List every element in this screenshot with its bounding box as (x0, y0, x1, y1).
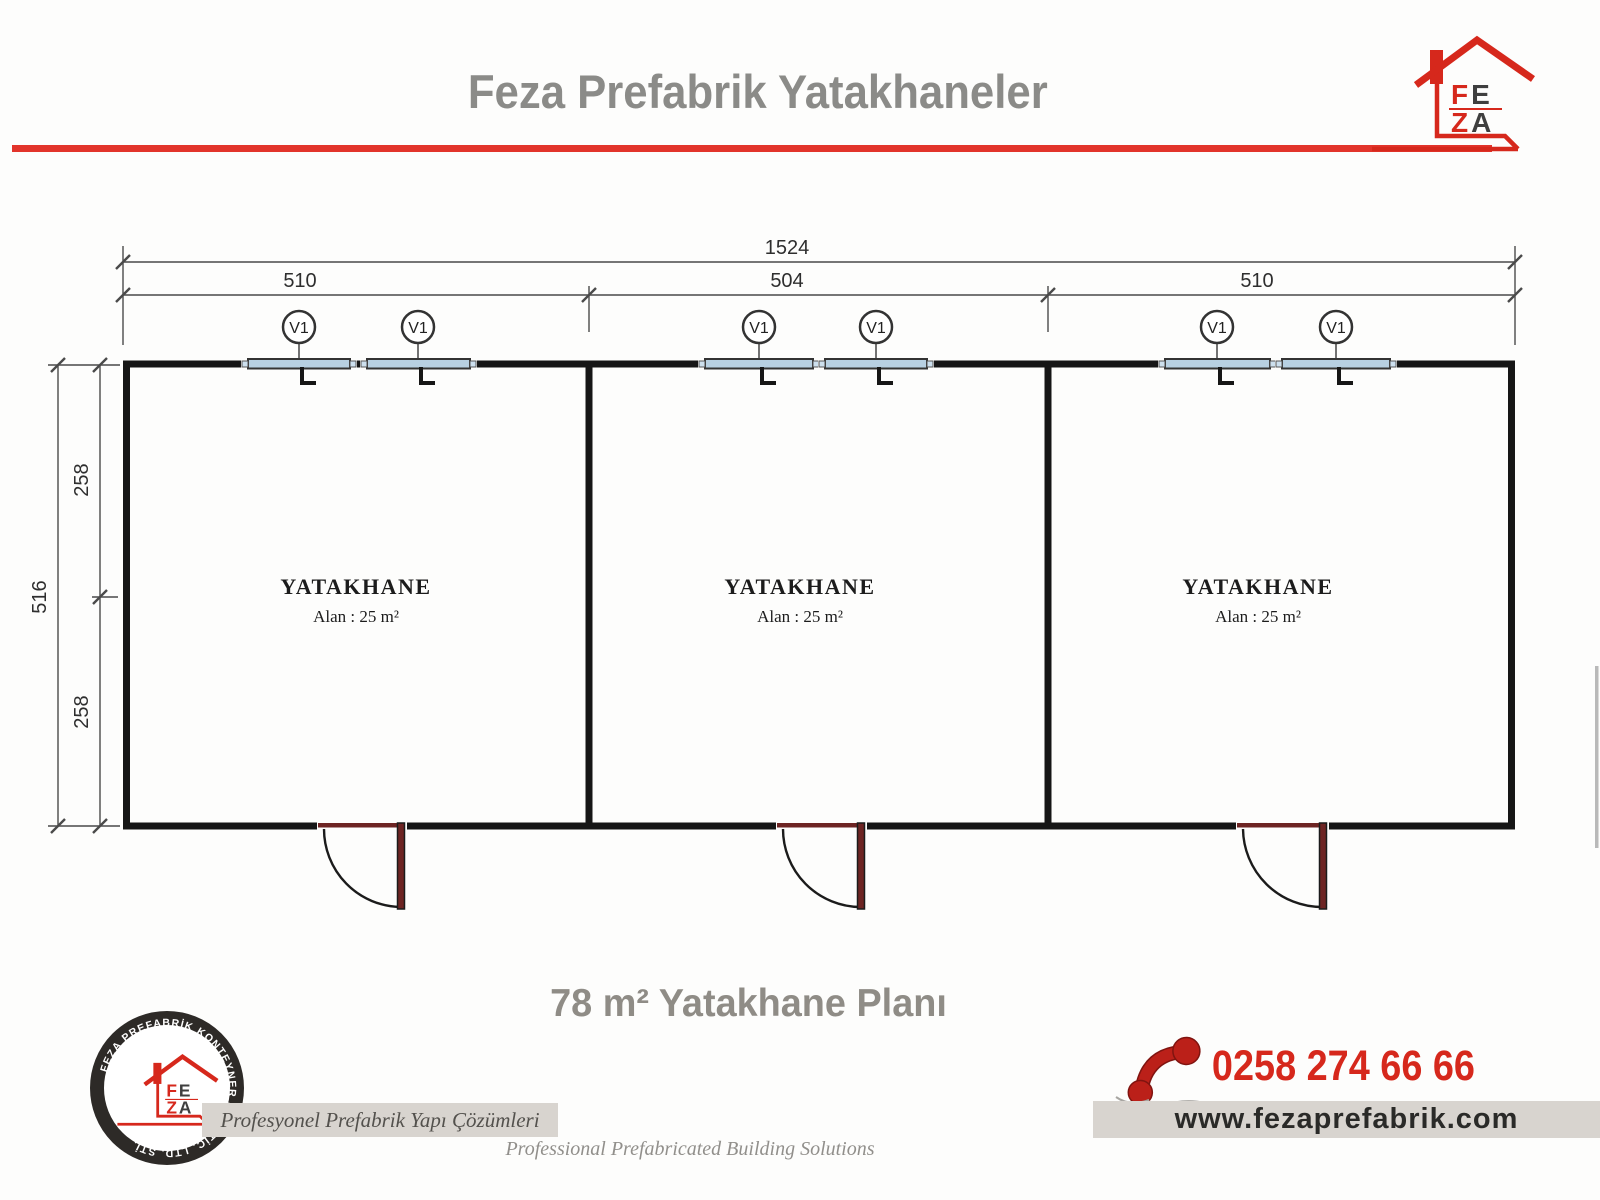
page: Feza Prefabrik Yatakhaneler FE ZA (0, 0, 1600, 1200)
dimension-lines-top (116, 246, 1522, 345)
window-v1: V1 (818, 311, 934, 383)
windows: V1 V1 V1 (241, 311, 1397, 383)
dim-upper-height: 258 (71, 463, 93, 496)
room-labels: YATAKHANE Alan : 25 m² YATAKHANE Alan : … (280, 574, 1333, 626)
window-tag-label: V1 (1326, 320, 1346, 337)
window-v1: V1 (241, 311, 357, 383)
doors (317, 819, 1329, 909)
room2-area: Alan : 25 m² (757, 607, 843, 626)
window-tag-label: V1 (289, 320, 309, 337)
room1-name: YATAKHANE (280, 574, 431, 599)
dimension-lines-left (48, 358, 120, 833)
room1-area: Alan : 25 m² (313, 607, 399, 626)
window-v1: V1 (1158, 311, 1277, 383)
room3-area: Alan : 25 m² (1215, 607, 1301, 626)
logo-letters-top: FE (1451, 79, 1493, 110)
dim-total-width: 1524 (765, 237, 810, 259)
company-seal: FEZA PREFABRİK KONTEYNER SAN. TİC. LTD. … (97, 1017, 238, 1159)
dim-room3-width: 510 (1240, 270, 1273, 292)
door-room3 (1236, 819, 1329, 909)
window-v1: V1 (1275, 311, 1397, 383)
website-url: www.fezaprefabrik.com (1175, 1103, 1519, 1135)
dim-lower-height: 258 (71, 695, 93, 728)
window-tag-label: V1 (749, 320, 769, 337)
slogan-tr-text: Profesyonel Prefabrik Yapı Çözümleri (220, 1108, 539, 1132)
dimension-ticks-left (51, 358, 107, 833)
plan-caption: 78 m² Yatakhane Planı (0, 982, 1496, 1026)
room2-name: YATAKHANE (724, 574, 875, 599)
door-room1 (317, 819, 407, 909)
dim-room2-width: 504 (770, 270, 803, 292)
phone-number: 0258 274 66 66 (1178, 1042, 1508, 1091)
room3-name: YATAKHANE (1182, 574, 1333, 599)
dim-room1-width: 510 (283, 270, 316, 292)
window-tag-label: V1 (866, 320, 886, 337)
right-edge-mark (1595, 666, 1599, 848)
door-room2 (776, 819, 867, 909)
window-v1: V1 (360, 311, 477, 383)
window-tag-label: V1 (408, 320, 428, 337)
window-tag-label: V1 (1207, 320, 1227, 337)
slogan-banner-tr: Profesyonel Prefabrik Yapı Çözümleri (202, 1103, 558, 1137)
logo-letters-bottom: ZA (1451, 107, 1494, 138)
feza-house-logo: FE ZA (1372, 40, 1533, 149)
website-banner: www.fezaprefabrik.com (1093, 1101, 1600, 1138)
dim-total-height: 516 (29, 580, 51, 613)
window-v1: V1 (698, 311, 820, 383)
slogan-en-text: Professional Prefabricated Building Solu… (470, 1138, 910, 1161)
